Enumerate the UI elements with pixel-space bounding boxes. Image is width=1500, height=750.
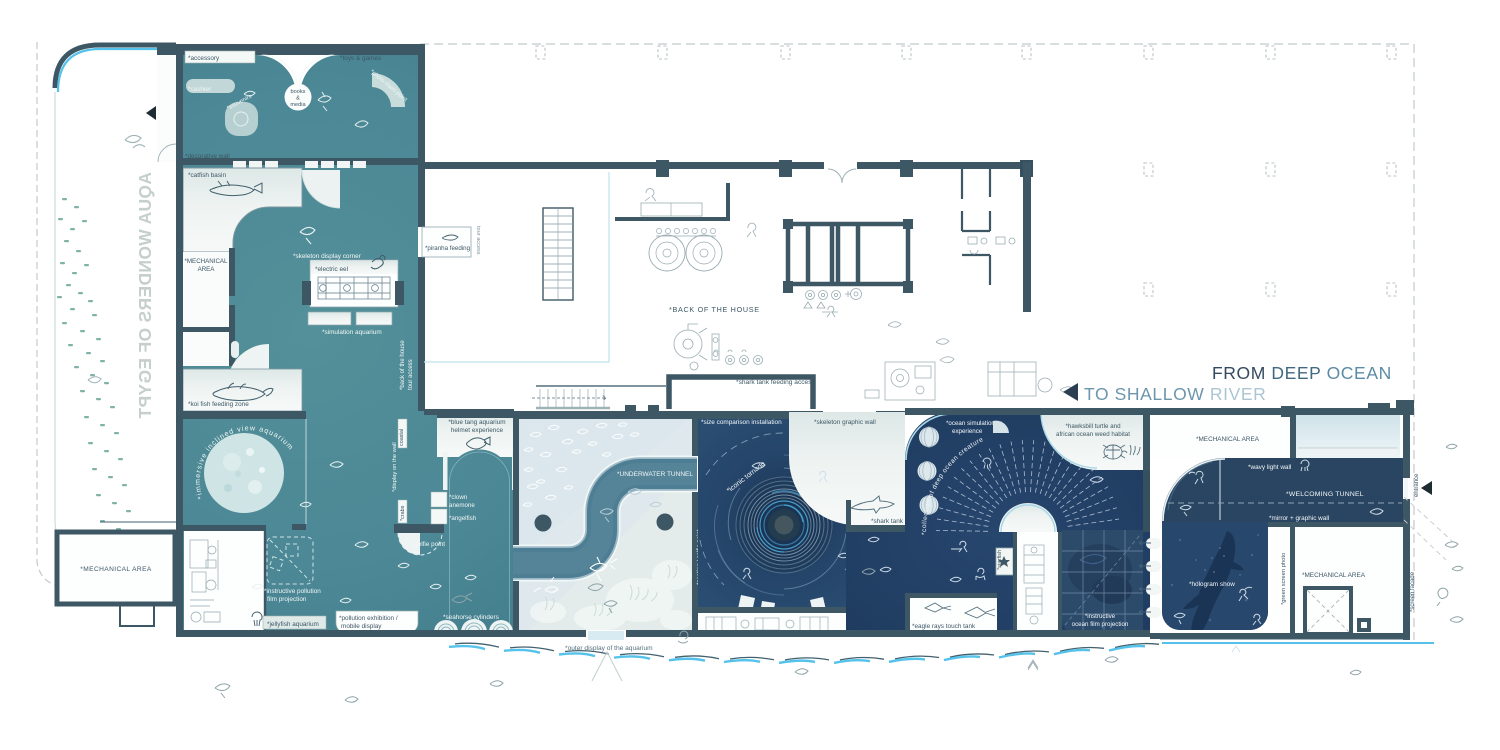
svg-text:african ocean weed habitat: african ocean weed habitat: [1056, 431, 1130, 438]
svg-text:*piranha feeding: *piranha feeding: [425, 245, 471, 252]
svg-text:*WELCOMING TUNNEL: *WELCOMING TUNNEL: [1286, 491, 1364, 498]
svg-text:media: media: [290, 102, 306, 108]
svg-text:film projection: film projection: [267, 596, 307, 603]
svg-text:*angelfish: *angelfish: [449, 515, 477, 522]
svg-text:*MECHANICAL AREA: *MECHANICAL AREA: [1196, 436, 1260, 443]
svg-text:*shark tank feeding access: *shark tank feeding access: [736, 379, 816, 386]
svg-text:*skeleton graphic wall: *skeleton graphic wall: [814, 419, 876, 426]
svg-text:experience: experience: [952, 428, 983, 435]
svg-text:*display on the wall: *display on the wall: [392, 442, 398, 492]
svg-text:*screen facade: *screen facade: [1410, 571, 1416, 612]
svg-text:*selfie point: *selfie point: [412, 541, 445, 548]
svg-text:ocean film projection: ocean film projection: [1072, 621, 1129, 628]
svg-text:*crabs: *crabs: [400, 505, 406, 521]
svg-text:*accessory: *accessory: [188, 55, 220, 62]
svg-text:*eagle rays touch tank: *eagle rays touch tank: [912, 623, 976, 630]
svg-text:tour access: tour access: [475, 226, 481, 255]
svg-text:AQUA WONDERS OF EGYPT: AQUA WONDERS OF EGYPT: [135, 172, 155, 419]
svg-text:*UNDERWATER TUNNEL: *UNDERWATER TUNNEL: [617, 471, 693, 478]
svg-text:*starfish: *starfish: [997, 550, 1003, 570]
svg-text:tour access: tour access: [408, 359, 414, 390]
svg-text:*mirror + graphic wall: *mirror + graphic wall: [1269, 515, 1329, 522]
svg-text:*wavy light wall: *wavy light wall: [1248, 464, 1291, 471]
svg-text:*outer display of the aquarium: *outer display of the aquarium: [565, 645, 653, 652]
svg-text:*shark tank: *shark tank: [871, 518, 904, 525]
svg-text:*skeleton display corner: *skeleton display corner: [293, 253, 362, 260]
svg-text:FROM DEEP OCEAN: FROM DEEP OCEAN: [1212, 363, 1392, 383]
svg-text:*MECHANICAL: *MECHANICAL: [185, 258, 229, 265]
svg-text:*hologram show: *hologram show: [1189, 581, 1235, 588]
svg-text:*simulation aquarium: *simulation aquarium: [322, 329, 382, 336]
svg-text:coastal: coastal: [399, 429, 405, 446]
svg-text:&: &: [296, 96, 300, 102]
svg-text:TO SHALLOW RIVER: TO SHALLOW RIVER: [1084, 384, 1266, 404]
svg-text:*back of the house: *back of the house: [400, 340, 406, 390]
svg-text:*koi fish feeding zone: *koi fish feeding zone: [188, 401, 249, 408]
svg-text:mobile display: mobile display: [341, 623, 382, 630]
svg-text:helmet experience: helmet experience: [451, 427, 504, 434]
svg-text:*catfish basin: *catfish basin: [188, 172, 226, 179]
svg-text:*MECHANICAL AREA: *MECHANICAL AREA: [1302, 572, 1366, 579]
svg-text:*hawksbill turtle and: *hawksbill turtle and: [1065, 423, 1121, 430]
svg-text:*size comparison installation: *size comparison installation: [701, 419, 782, 426]
svg-text:AREA: AREA: [198, 266, 216, 273]
svg-text:*cashier: *cashier: [188, 86, 212, 93]
svg-text:*toys & games: *toys & games: [340, 55, 381, 62]
svg-text:anemone: anemone: [449, 502, 475, 509]
svg-text:*instructive pollution: *instructive pollution: [264, 588, 321, 595]
svg-text:*clown: *clown: [449, 494, 468, 501]
svg-text:*BACK OF THE HOUSE: *BACK OF THE HOUSE: [669, 305, 760, 314]
svg-text:*MECHANICAL AREA: *MECHANICAL AREA: [80, 566, 152, 573]
svg-text:*green screen photo: *green screen photo: [1281, 553, 1287, 605]
svg-text:*jellyfish aquarium: *jellyfish aquarium: [267, 621, 319, 628]
svg-text:*pollution exhibition /: *pollution exhibition /: [339, 615, 398, 622]
svg-text:entrance: entrance: [1414, 473, 1420, 497]
svg-text:*instructive: *instructive: [1085, 613, 1116, 620]
svg-text:*electric eel: *electric eel: [315, 266, 348, 273]
svg-text:*blue tang aquarium: *blue tang aquarium: [448, 419, 505, 426]
svg-text:books: books: [291, 89, 306, 95]
